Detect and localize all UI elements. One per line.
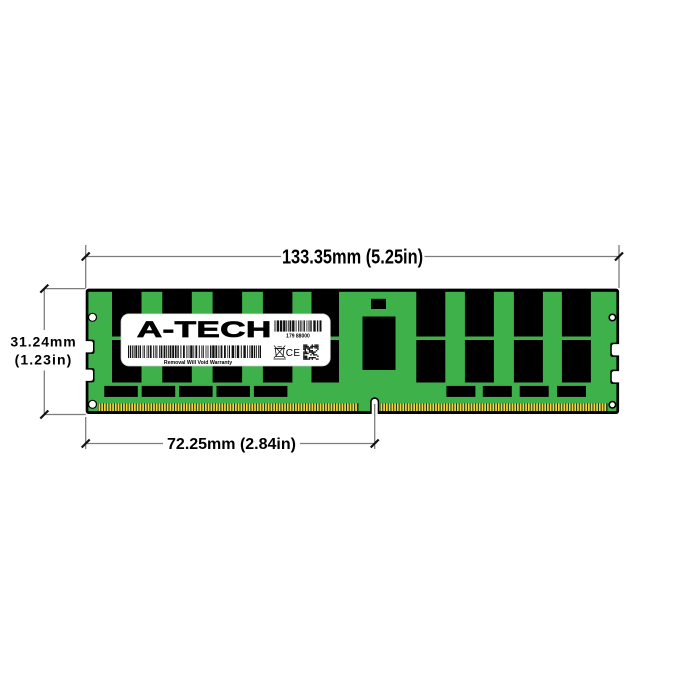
svg-text:179 88000: 179 88000 <box>286 334 310 340</box>
svg-text:(1.23in): (1.23in) <box>15 351 73 367</box>
svg-text:Removal Will Void Warranty: Removal Will Void Warranty <box>164 360 232 366</box>
svg-text:133.35mm (5.25in): 133.35mm (5.25in) <box>282 245 423 268</box>
svg-text:31.24mm: 31.24mm <box>10 333 76 349</box>
svg-text:A-TECH: A-TECH <box>137 317 272 342</box>
svg-text:CE: CE <box>286 348 301 359</box>
svg-text:72.25mm (2.84in): 72.25mm (2.84in) <box>167 436 296 453</box>
